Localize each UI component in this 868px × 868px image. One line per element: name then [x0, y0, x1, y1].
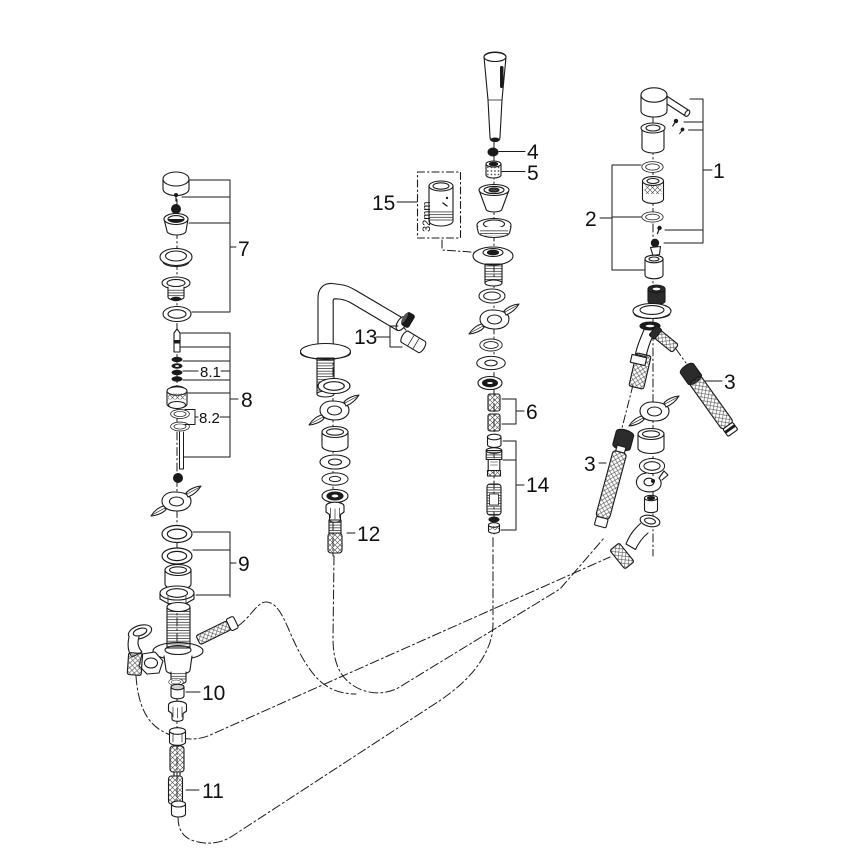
- part-7-group: [160, 172, 192, 322]
- part-5-filter: [486, 161, 501, 178]
- callout-3-right: 3: [724, 371, 736, 394]
- part-6-studs: [488, 394, 500, 431]
- part-8-cartridge-group: [167, 329, 189, 469]
- callout-10: 10: [202, 682, 225, 705]
- callout-9: 9: [238, 553, 250, 576]
- part-10-11-group: [169, 678, 187, 817]
- callout-6: 6: [526, 401, 538, 424]
- part-2-body-group: [629, 285, 679, 389]
- part-12-group: [309, 379, 359, 554]
- callout-14: 14: [526, 474, 550, 497]
- screw-icon: [678, 127, 685, 135]
- callout-13: 13: [354, 326, 377, 349]
- screw-icon: [655, 225, 662, 234]
- mounting-bracket: [629, 396, 679, 426]
- part-13-aerator: [399, 311, 427, 354]
- callout-11: 11: [202, 780, 224, 803]
- callout-8-1: 8.1: [200, 364, 221, 381]
- callout-7: 7: [238, 238, 250, 261]
- callout-4: 4: [527, 141, 539, 164]
- callout-3-left: 3: [584, 453, 596, 476]
- part-9-group: [151, 473, 201, 604]
- callout-2: 2: [585, 208, 597, 231]
- screw-icon: [671, 118, 679, 127]
- valve-body: [127, 603, 239, 685]
- exploded-parts-diagram: 1 2 3 3 4 5 6 7 8 8.1 8.2 9 10 11 12 13 …: [0, 0, 868, 868]
- callout-5: 5: [527, 162, 539, 185]
- part-14-group: [486, 434, 502, 533]
- callout-8: 8: [241, 389, 253, 412]
- part-4-oring: [488, 148, 499, 157]
- diagram-svg: 1 2 3 3 4 5 6 7 8 8.1 8.2 9 10 11 12 13 …: [0, 0, 868, 868]
- callout-1: 1: [713, 160, 725, 183]
- part-handshower: [484, 52, 506, 142]
- part-3-hose-left: [591, 428, 634, 529]
- callout-12: 12: [357, 523, 380, 546]
- dimension-label: 32mm: [421, 201, 433, 232]
- part-1-lever-group: [641, 88, 691, 279]
- callout-15: 15: [372, 192, 395, 215]
- callout-8-2: 8.2: [199, 410, 220, 427]
